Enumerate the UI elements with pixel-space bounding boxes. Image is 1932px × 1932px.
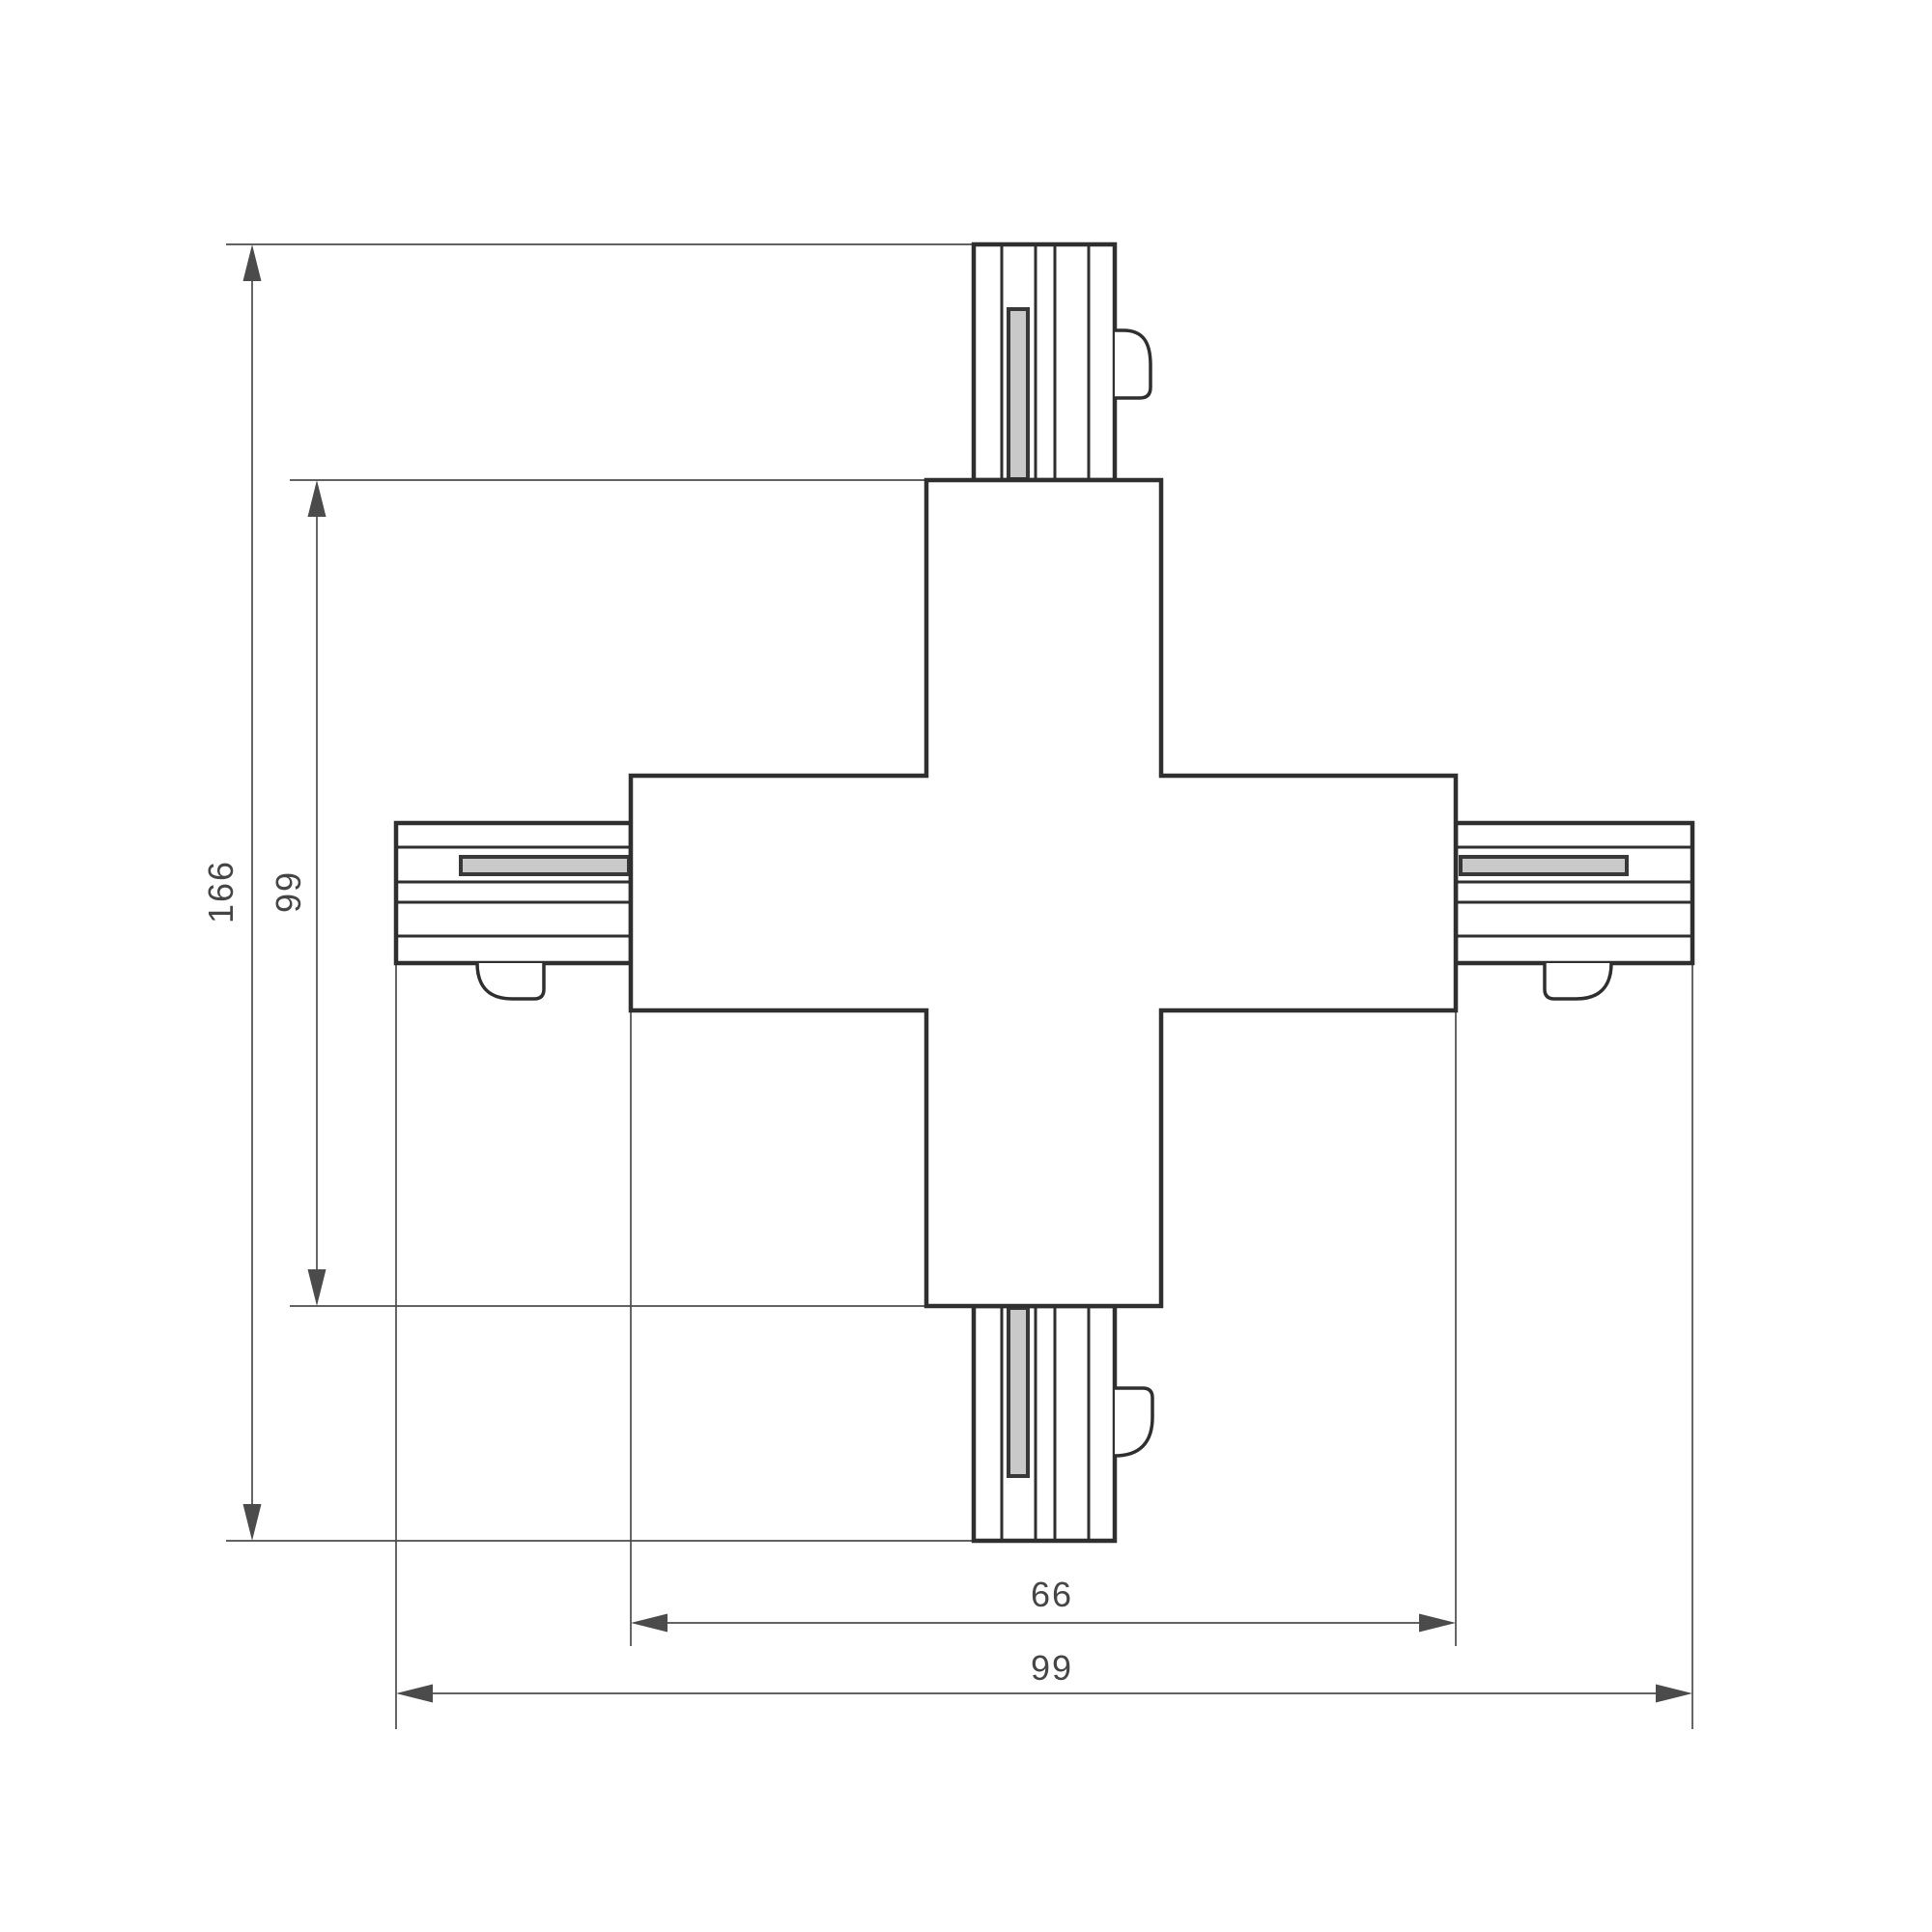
track-bottom-outline [974, 1306, 1115, 1541]
latch-left [477, 963, 544, 999]
dim-arrow-down-icon [308, 1269, 327, 1306]
dim-arrow-up-icon [243, 244, 262, 281]
contact-slot-top [1009, 309, 1028, 479]
dim-arrow-left-icon [631, 1614, 668, 1633]
dim-body-width [631, 1614, 1456, 1633]
latch-top [1115, 330, 1151, 398]
dim-label-body-height: 99 [271, 870, 306, 913]
contact-slot-bottom [1009, 1308, 1028, 1476]
track-top-outline [974, 244, 1115, 480]
track-right-outline [1456, 823, 1692, 963]
track-left-outline [396, 823, 631, 963]
track-right [1456, 823, 1692, 963]
contact-slot-left [461, 857, 629, 874]
dim-overall-height [243, 244, 262, 1541]
latch-right [1545, 963, 1611, 999]
latch-bottom [1115, 1388, 1152, 1456]
dim-arrow-left-icon [396, 1685, 433, 1703]
contact-slot-right [1461, 857, 1627, 874]
dim-arrow-up-icon [308, 480, 327, 517]
track-top [974, 244, 1115, 480]
dim-label-body-width: 66 [1031, 1577, 1073, 1612]
dim-body-height [308, 480, 327, 1306]
technical-drawing [0, 0, 1932, 1932]
dim-arrow-right-icon [1656, 1685, 1692, 1703]
connector-body [631, 480, 1456, 1306]
track-left [396, 823, 631, 963]
dim-label-overall-width: 99 [1031, 1651, 1073, 1686]
track-bottom [974, 1306, 1115, 1541]
dim-arrow-right-icon [1419, 1614, 1456, 1633]
drawing-canvas: 166 99 66 99 [0, 0, 1932, 1932]
dim-arrow-down-icon [243, 1504, 262, 1541]
dim-label-overall-height: 166 [204, 860, 239, 923]
